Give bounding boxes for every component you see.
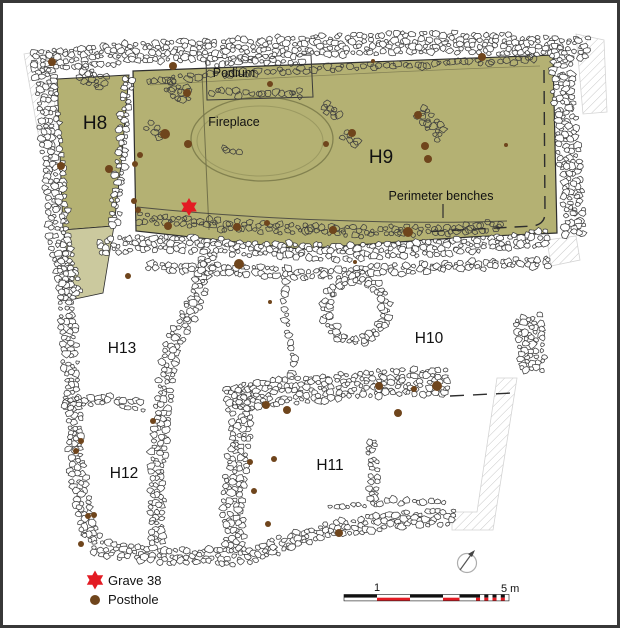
posthole-marker [137, 152, 143, 158]
posthole-marker [105, 165, 113, 173]
label-h13: H13 [108, 340, 136, 357]
posthole-marker [73, 448, 79, 454]
posthole-marker [394, 409, 402, 417]
stone-wall-band [219, 385, 258, 553]
posthole-marker [57, 162, 65, 170]
stone-wall-band [366, 439, 381, 502]
posthole-marker [132, 161, 138, 167]
posthole-marker [265, 521, 271, 527]
stone-wall-band [513, 312, 547, 374]
north-arrow [458, 550, 477, 573]
posthole-marker [411, 386, 417, 392]
posthole-marker [371, 59, 375, 63]
legend-grave-star-icon [87, 571, 103, 590]
posthole-marker [251, 488, 257, 494]
posthole-marker [135, 207, 141, 213]
stone-wall-band [319, 272, 394, 346]
label-h8: H8 [83, 113, 107, 134]
posthole-marker [131, 198, 137, 204]
label-h12: H12 [110, 465, 138, 482]
posthole-marker [478, 53, 486, 61]
posthole-marker [233, 223, 241, 231]
stone-wall-band [280, 275, 298, 389]
posthole-marker [323, 141, 329, 147]
hatch-area-mid-right [547, 236, 580, 266]
posthole-marker [184, 140, 192, 148]
posthole-marker [268, 300, 272, 304]
posthole-marker [48, 58, 56, 66]
scale-tick-1: 1 [374, 582, 380, 594]
stone-wall-band [328, 495, 446, 509]
posthole-marker [78, 541, 84, 547]
scale-bar-segments [344, 595, 509, 601]
posthole-marker [234, 259, 244, 269]
posthole-marker [78, 438, 84, 444]
posthole-marker [504, 143, 508, 147]
posthole-marker [264, 220, 270, 226]
plan-frame: H8 H9 H10 H11 H12 H13 Podium Fireplace P… [0, 0, 620, 628]
posthole-marker [85, 513, 91, 519]
posthole-marker [375, 382, 383, 390]
posthole-marker [421, 142, 429, 150]
scale-bar: 1 5 m [344, 582, 519, 601]
stone-wall-band [90, 539, 244, 567]
house-floors [57, 55, 557, 299]
hatch-area-right-band [452, 378, 517, 530]
site-plan-svg: H8 H9 H10 H11 H12 H13 Podium Fireplace P… [0, 0, 620, 628]
posthole-marker [432, 381, 442, 391]
posthole-marker [353, 260, 357, 264]
posthole-marker [348, 129, 356, 137]
posthole-marker [183, 89, 191, 97]
legend-grave-label: Grave 38 [108, 573, 161, 588]
posthole-marker [335, 529, 343, 537]
posthole-marker [403, 227, 413, 237]
legend: Grave 38 Posthole [87, 571, 162, 608]
posthole-marker [150, 418, 156, 424]
posthole-marker [262, 401, 270, 409]
posthole-marker [164, 222, 172, 230]
posthole-marker [160, 129, 170, 139]
posthole-marker [169, 62, 177, 70]
legend-posthole-label: Posthole [108, 592, 159, 607]
posthole-marker [329, 226, 337, 234]
label-fireplace: Fireplace [208, 115, 259, 129]
label-podium: Podium [213, 66, 255, 80]
label-perimeter-benches: Perimeter benches [389, 189, 494, 203]
posthole-marker [271, 456, 277, 462]
posthole-marker [247, 459, 253, 465]
posthole-marker [283, 406, 291, 414]
scale-tick-5: 5 m [501, 583, 519, 595]
posthole-marker [267, 81, 273, 87]
label-h9: H9 [369, 147, 393, 168]
posthole-marker [414, 111, 422, 119]
stone-wall-band [146, 249, 217, 546]
label-h11: H11 [316, 457, 343, 474]
legend-posthole-dot-icon [90, 595, 100, 605]
stone-wall-band [242, 508, 456, 565]
label-h10: H10 [415, 330, 444, 347]
posthole-marker [424, 155, 432, 163]
posthole-marker [125, 273, 131, 279]
posthole-marker [91, 512, 97, 518]
